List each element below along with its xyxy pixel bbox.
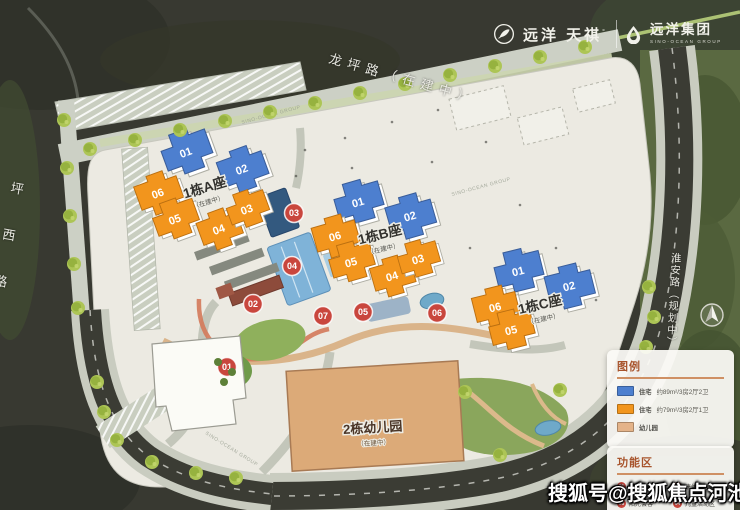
legend-swatch-orange [617,404,634,414]
zone-marker-04: 04 [283,257,302,276]
leaf-logo-icon [493,23,515,45]
kindergarten-building: 2栋幼儿园 （在建中） [286,361,464,471]
svg-text:07: 07 [318,311,328,321]
zone-marker-07: 07 [314,307,333,326]
legend-item-label: 幼儿园 [639,423,658,432]
svg-text:03: 03 [289,208,299,218]
brand-primary-mark: ° [602,29,608,36]
compass-north-icon [701,304,723,326]
brand-secondary-sub: SINO-OCEAN GROUP [650,40,722,45]
brand-divider [616,20,617,48]
brand-primary-text: 远洋 天祺 [523,27,602,44]
brand-secondary: 远洋集团 [650,23,722,38]
legend-item-label: 住宅 [639,387,652,396]
zone-marker-03: 03 [285,204,304,223]
legend-title: 图例 [617,358,724,374]
legend-swatch-tan [617,422,634,432]
sohu-watermark: 搜狐号@搜狐焦点河池站 [548,477,740,506]
zone-marker-05: 05 [354,303,373,322]
zone-marker-06: 06 [428,304,447,323]
legend-item-kindergarten: 幼儿园 [617,422,724,432]
zones-rule [617,473,724,475]
legend-panel: 图例 住宅 约89m²/3房2厅2卫 住宅 约79m²/3房2厅1卫 幼儿园 [607,350,734,448]
sino-ocean-logo-icon [625,25,642,44]
svg-text:06: 06 [432,308,442,318]
legend-swatch-blue [617,386,634,396]
brand-header: 远洋 天祺° 远洋集团 SINO-OCEAN GROUP [493,20,722,48]
legend-item-desc: 约89m²/3房2厅2卫 [657,387,709,396]
legend-item-residential-79: 住宅 约79m²/3房2厅1卫 [617,404,724,414]
zones-title: 功能区 [617,454,724,470]
svg-text:02: 02 [248,299,258,309]
zone-marker-02: 02 [244,295,263,314]
brand-primary: 远洋 天祺° [523,24,608,45]
legend-rule [617,377,724,379]
site-plan-image: 2栋幼儿园 （在建中） SINO-OCEAN GROUP SINO-OCEAN … [0,0,740,510]
legend-item-desc: 约79m²/3房2厅1卫 [657,405,709,414]
svg-text:05: 05 [358,307,368,317]
legend-item-label: 住宅 [639,405,652,414]
svg-text:04: 04 [287,261,297,271]
legend-item-residential-89: 住宅 约89m²/3房2厅2卫 [617,386,724,396]
